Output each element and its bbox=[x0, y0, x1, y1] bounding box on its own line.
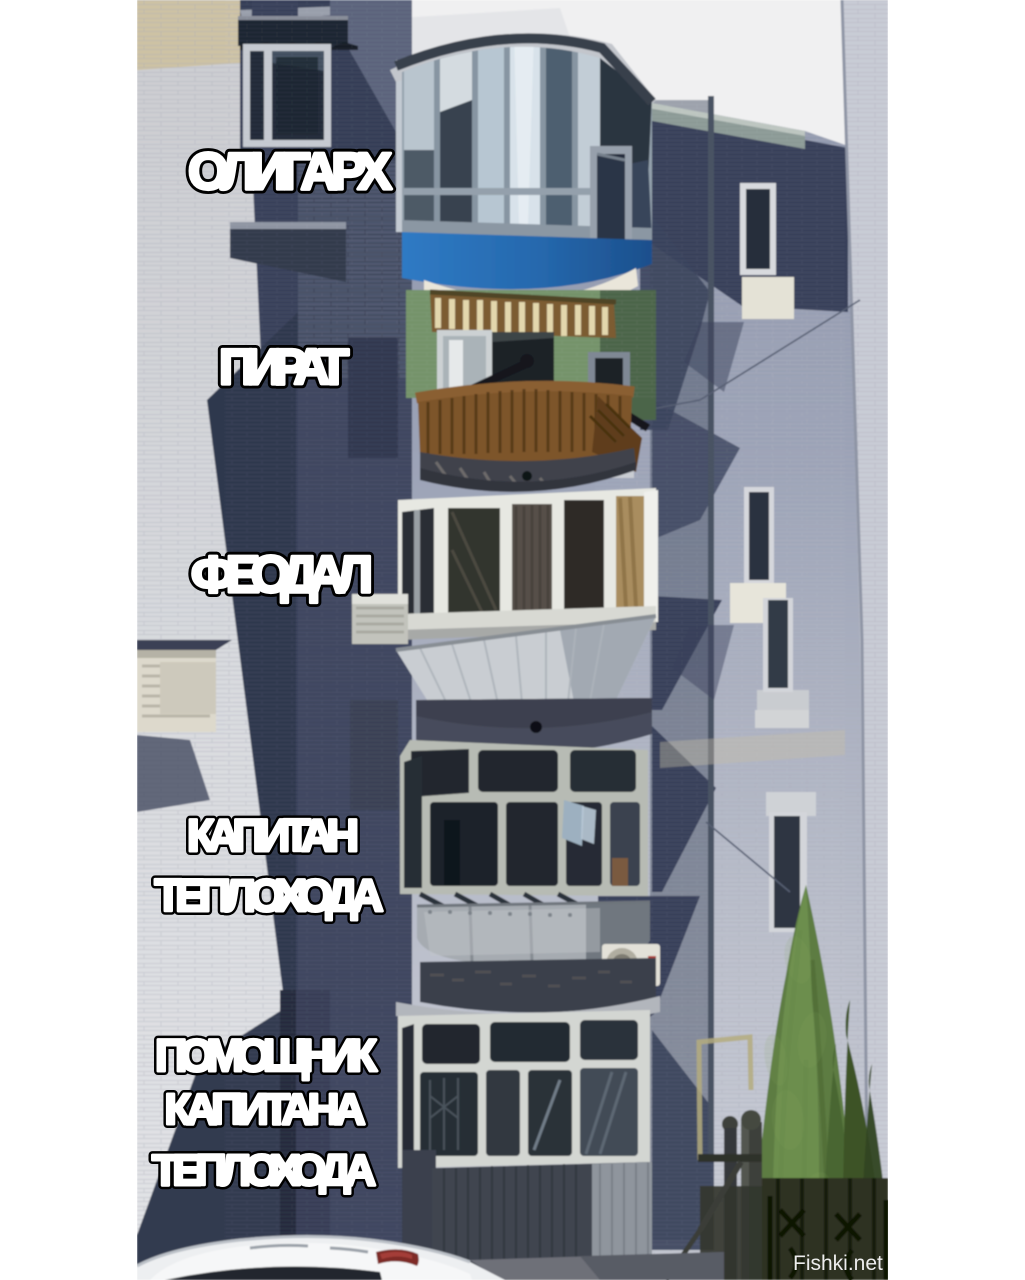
svg-text:ПОМОЩНИК: ПОМОЩНИК bbox=[155, 1030, 378, 1081]
svg-text:Fishki.net: Fishki.net bbox=[793, 1252, 883, 1275]
svg-text:ТЕПЛОХОДА: ТЕПЛОХОДА bbox=[152, 1146, 376, 1195]
svg-text:КАПИТАНА: КАПИТАНА bbox=[165, 1085, 366, 1134]
svg-text:ОЛИГАРХ: ОЛИГАРХ bbox=[188, 143, 392, 201]
svg-text:ФЕОДАЛ: ФЕОДАЛ bbox=[191, 546, 373, 604]
svg-text:ПИРАТ: ПИРАТ bbox=[219, 339, 349, 395]
svg-text:КАПИТАН: КАПИТАН bbox=[187, 810, 359, 861]
svg-text:ТЕПЛОХОДА: ТЕПЛОХОДА bbox=[155, 870, 384, 921]
